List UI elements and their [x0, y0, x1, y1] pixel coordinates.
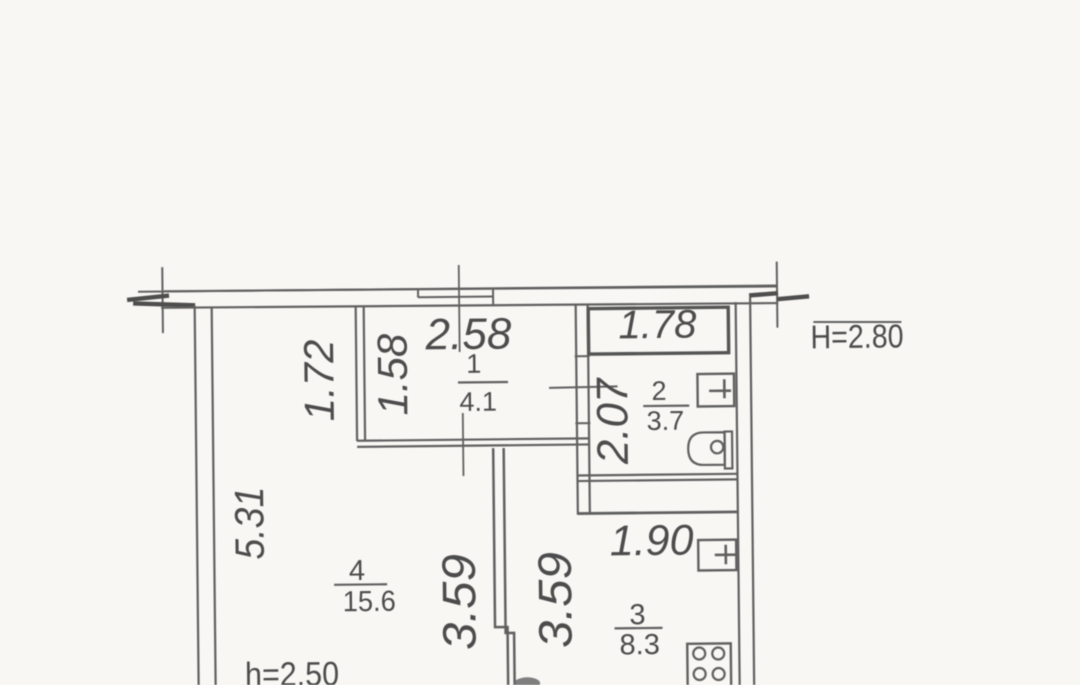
- svg-text:1.58: 1.58: [368, 333, 416, 416]
- svg-text:3.59: 3.59: [432, 554, 486, 651]
- svg-text:1: 1: [466, 349, 481, 379]
- svg-text:3.59: 3.59: [528, 552, 582, 649]
- svg-text:2.07: 2.07: [588, 377, 638, 466]
- svg-text:4: 4: [349, 555, 365, 587]
- svg-text:5.31: 5.31: [226, 486, 273, 559]
- svg-text:3.7: 3.7: [646, 406, 684, 436]
- svg-text:h=2.50: h=2.50: [245, 655, 339, 685]
- svg-text:2: 2: [651, 376, 666, 406]
- svg-text:1.78: 1.78: [618, 303, 697, 348]
- svg-text:1.90: 1.90: [610, 517, 694, 566]
- svg-text:15.6: 15.6: [343, 586, 396, 619]
- svg-text:3: 3: [629, 599, 645, 631]
- svg-text:1.72: 1.72: [295, 339, 343, 421]
- svg-text:H=2.80: H=2.80: [810, 317, 903, 355]
- svg-text:8.3: 8.3: [619, 629, 660, 661]
- svg-text:4.1: 4.1: [459, 387, 497, 417]
